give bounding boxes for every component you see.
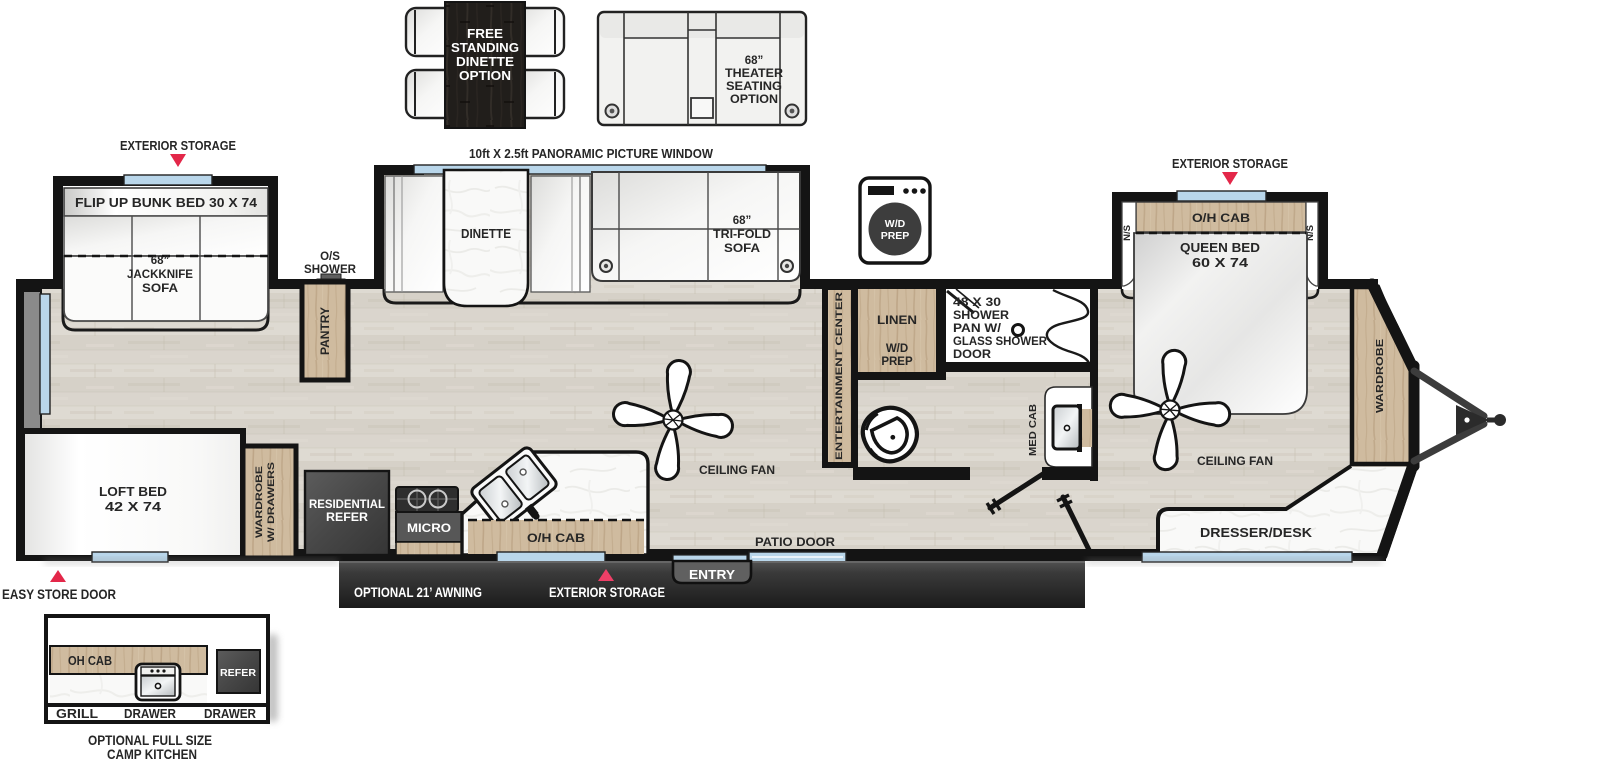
svg-text:REFER: REFER: [326, 512, 369, 524]
svg-text:LINEN: LINEN: [877, 315, 917, 327]
svg-text:SOFA: SOFA: [724, 243, 760, 255]
svg-text:PREP: PREP: [881, 356, 913, 368]
svg-text:PATIO DOOR: PATIO DOOR: [755, 535, 835, 549]
svg-text:OPTIONAL 21’ AWNING: OPTIONAL 21’ AWNING: [354, 584, 482, 600]
svg-text:68”: 68”: [745, 55, 764, 67]
svg-text:PAN W/: PAN W/: [953, 323, 1002, 335]
svg-text:OH CAB: OH CAB: [68, 654, 112, 668]
svg-text:CEILING FAN: CEILING FAN: [1197, 454, 1273, 468]
svg-text:DRESSER/DESK: DRESSER/DESK: [1200, 526, 1312, 540]
svg-text:OPTION: OPTION: [459, 69, 511, 83]
svg-text:CAMP KITCHEN: CAMP KITCHEN: [107, 747, 197, 760]
svg-text:OPTION: OPTION: [730, 94, 778, 106]
svg-text:O/S: O/S: [320, 251, 340, 263]
svg-text:N/S: N/S: [1122, 225, 1133, 241]
svg-text:MED CAB: MED CAB: [1027, 404, 1039, 456]
svg-text:10ft X 2.5ft PANORAMIC PICTURE: 10ft X 2.5ft PANORAMIC PICTURE WINDOW: [469, 146, 714, 161]
svg-text:PREP: PREP: [881, 230, 910, 242]
svg-text:GLASS SHOWER: GLASS SHOWER: [953, 336, 1048, 348]
svg-text:CEILING FAN: CEILING FAN: [699, 463, 775, 477]
svg-text:W/D: W/D: [885, 218, 906, 230]
svg-text:DOOR: DOOR: [953, 349, 992, 361]
svg-text:DRAWER: DRAWER: [124, 707, 176, 721]
svg-text:68”: 68”: [151, 255, 170, 267]
svg-text:O/H CAB: O/H CAB: [1192, 213, 1250, 225]
svg-text:W/ DRAWERS: W/ DRAWERS: [266, 462, 277, 542]
svg-text:GRILL: GRILL: [56, 707, 98, 721]
svg-text:LOFT BED: LOFT BED: [99, 485, 167, 499]
svg-text:W/D: W/D: [886, 343, 908, 355]
svg-text:DINETTE: DINETTE: [461, 226, 511, 241]
svg-text:DRAWER: DRAWER: [204, 707, 256, 721]
svg-text:TRI-FOLD: TRI-FOLD: [713, 229, 771, 241]
svg-text:THEATER: THEATER: [725, 68, 784, 80]
svg-text:SHOWER: SHOWER: [953, 310, 1010, 322]
svg-text:MICRO: MICRO: [407, 523, 451, 535]
svg-text:SOFA: SOFA: [142, 283, 178, 295]
svg-text:60 X 74: 60 X 74: [1192, 256, 1248, 270]
svg-text:WARDROBE: WARDROBE: [254, 466, 265, 538]
svg-text:42 X 74: 42 X 74: [105, 500, 161, 514]
svg-text:DINETTE: DINETTE: [456, 55, 514, 69]
svg-text:STANDING: STANDING: [451, 41, 519, 55]
svg-text:SEATING: SEATING: [726, 81, 782, 93]
svg-text:REFER: REFER: [220, 667, 256, 679]
svg-text:48 X 30: 48 X 30: [953, 297, 1001, 309]
svg-text:FREE: FREE: [467, 27, 503, 41]
svg-text:OPTIONAL FULL SIZE: OPTIONAL FULL SIZE: [88, 733, 212, 748]
svg-text:ENTRY: ENTRY: [689, 568, 736, 582]
svg-text:JACKKNIFE: JACKKNIFE: [127, 269, 193, 281]
svg-text:ENTERTAINMENT CENTER: ENTERTAINMENT CENTER: [834, 291, 844, 460]
svg-text:EXTERIOR STORAGE: EXTERIOR STORAGE: [120, 138, 236, 153]
svg-text:RESIDENTIAL: RESIDENTIAL: [309, 499, 385, 511]
svg-text:WARDROBE: WARDROBE: [1374, 339, 1386, 413]
svg-text:EXTERIOR STORAGE: EXTERIOR STORAGE: [549, 584, 665, 600]
svg-text:68”: 68”: [733, 215, 752, 227]
svg-text:FLIP UP BUNK BED 30 X 74: FLIP UP BUNK BED 30 X 74: [75, 196, 257, 210]
svg-text:PANTRY: PANTRY: [320, 307, 332, 355]
svg-text:EXTERIOR STORAGE: EXTERIOR STORAGE: [1172, 156, 1288, 171]
svg-text:QUEEN BED: QUEEN BED: [1180, 241, 1260, 255]
svg-text:O/H CAB: O/H CAB: [527, 533, 585, 545]
svg-text:EASY STORE DOOR: EASY STORE DOOR: [2, 587, 116, 602]
